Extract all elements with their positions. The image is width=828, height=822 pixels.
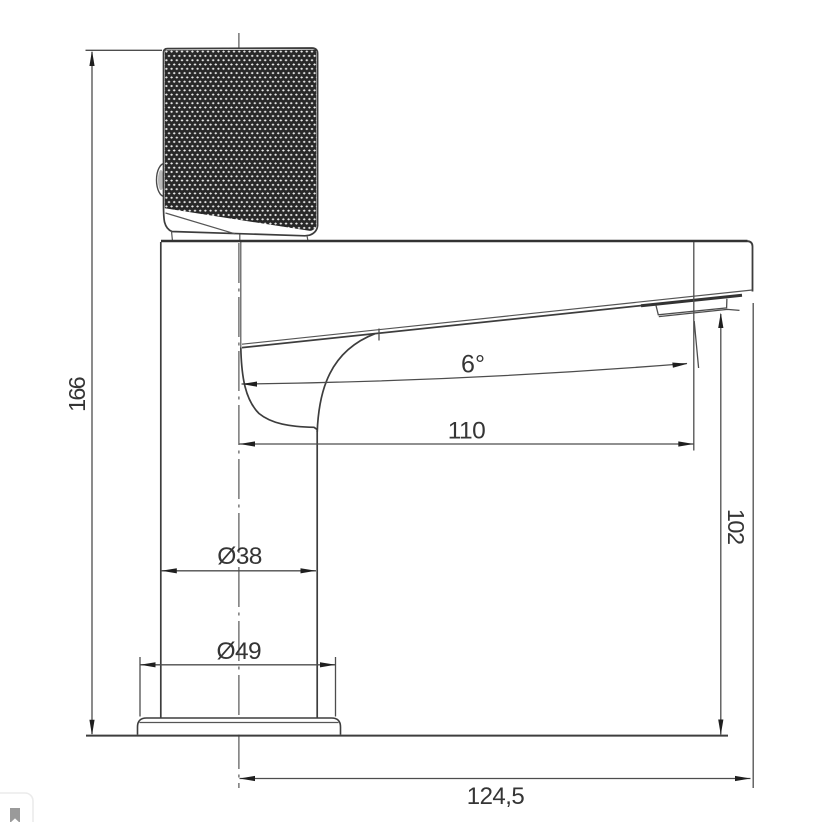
svg-text:124,5: 124,5 [467, 783, 525, 810]
svg-text:Ø38: Ø38 [217, 543, 262, 570]
svg-text:110: 110 [448, 418, 486, 445]
svg-text:102: 102 [723, 509, 749, 544]
svg-text:Ø49: Ø49 [217, 638, 262, 665]
svg-text:166: 166 [64, 376, 90, 412]
svg-text:6°: 6° [461, 351, 485, 379]
